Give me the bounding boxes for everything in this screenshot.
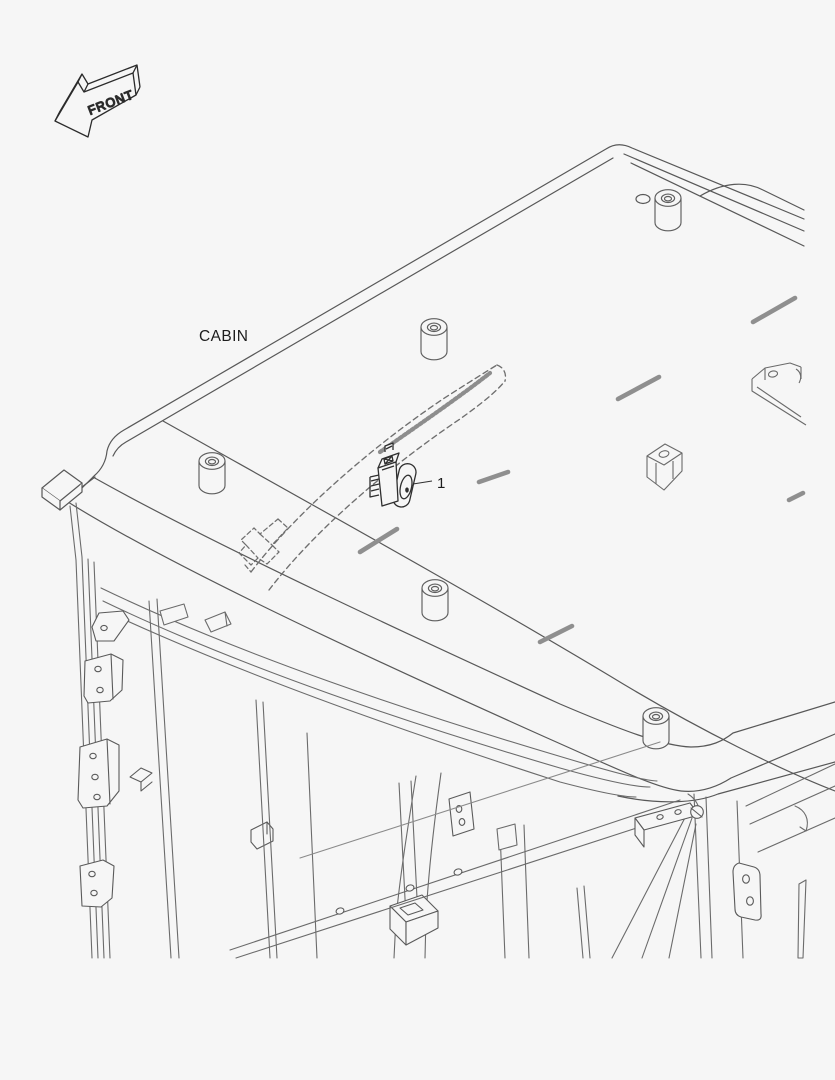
weld-dash xyxy=(618,377,659,399)
pillar-bracket xyxy=(84,654,123,703)
roof-outline xyxy=(68,145,835,792)
header-clip xyxy=(205,612,231,632)
pillar-hook xyxy=(795,806,807,831)
pillar-bracket xyxy=(78,739,119,808)
rear-pillar-sliver xyxy=(798,880,806,958)
rounded-bracket xyxy=(733,863,761,920)
side-rails xyxy=(746,764,835,852)
switch-part xyxy=(370,443,418,509)
mounting-boss xyxy=(655,190,681,231)
weld-dash xyxy=(789,493,803,500)
cabin-parts-diagram: 1 CABIN FRONT xyxy=(0,0,835,1080)
pillar-clip xyxy=(130,768,152,791)
weld-dash xyxy=(360,529,397,552)
roof-front-fold-line xyxy=(93,477,835,747)
roof-mounting-bosses xyxy=(199,190,681,749)
callout-1: 1 xyxy=(413,475,445,492)
roof-corner-tab xyxy=(42,470,95,510)
callout-leader-line xyxy=(413,481,432,484)
mounting-boss xyxy=(199,453,225,494)
roof-hole xyxy=(636,195,650,204)
switch-face-dot xyxy=(405,487,409,492)
cab-frame xyxy=(70,503,835,958)
roof-side-bracket xyxy=(752,363,806,425)
cab-roof-panel xyxy=(42,145,835,802)
weld-dash xyxy=(479,472,508,482)
switch-top-tab xyxy=(385,443,393,452)
screw-head xyxy=(691,806,704,819)
callout-1-label: 1 xyxy=(437,475,445,492)
b-pillar xyxy=(149,599,179,958)
mounting-boss xyxy=(422,580,448,621)
switch-pins xyxy=(370,475,379,497)
mounting-boss xyxy=(643,708,669,749)
weld-dash xyxy=(540,626,572,642)
front-direction-arrow: FRONT xyxy=(55,65,140,137)
braces xyxy=(612,812,696,958)
roof-inner-edge-right xyxy=(624,154,804,231)
frame-plate xyxy=(497,824,517,850)
parts-diagram-page: 1 CABIN FRONT xyxy=(0,0,835,1080)
roof-inner-edge-left xyxy=(113,158,613,456)
harness-connector xyxy=(239,519,288,572)
roof-front-underside-line xyxy=(618,762,835,802)
harness-end xyxy=(497,365,506,381)
hinge-plate xyxy=(160,604,188,625)
frame-bracket xyxy=(449,792,474,836)
weld-dash xyxy=(753,298,795,322)
pillar-bracket xyxy=(92,611,129,641)
mounting-boss xyxy=(421,319,447,360)
mid-beam xyxy=(300,742,660,858)
wiring-harness xyxy=(239,365,506,590)
harness-loom-texture xyxy=(380,373,490,452)
cabin-label: CABIN xyxy=(199,328,248,345)
roof-clamp-bracket xyxy=(647,444,682,490)
header-rail xyxy=(112,614,636,797)
pillar-bracket xyxy=(80,860,114,907)
